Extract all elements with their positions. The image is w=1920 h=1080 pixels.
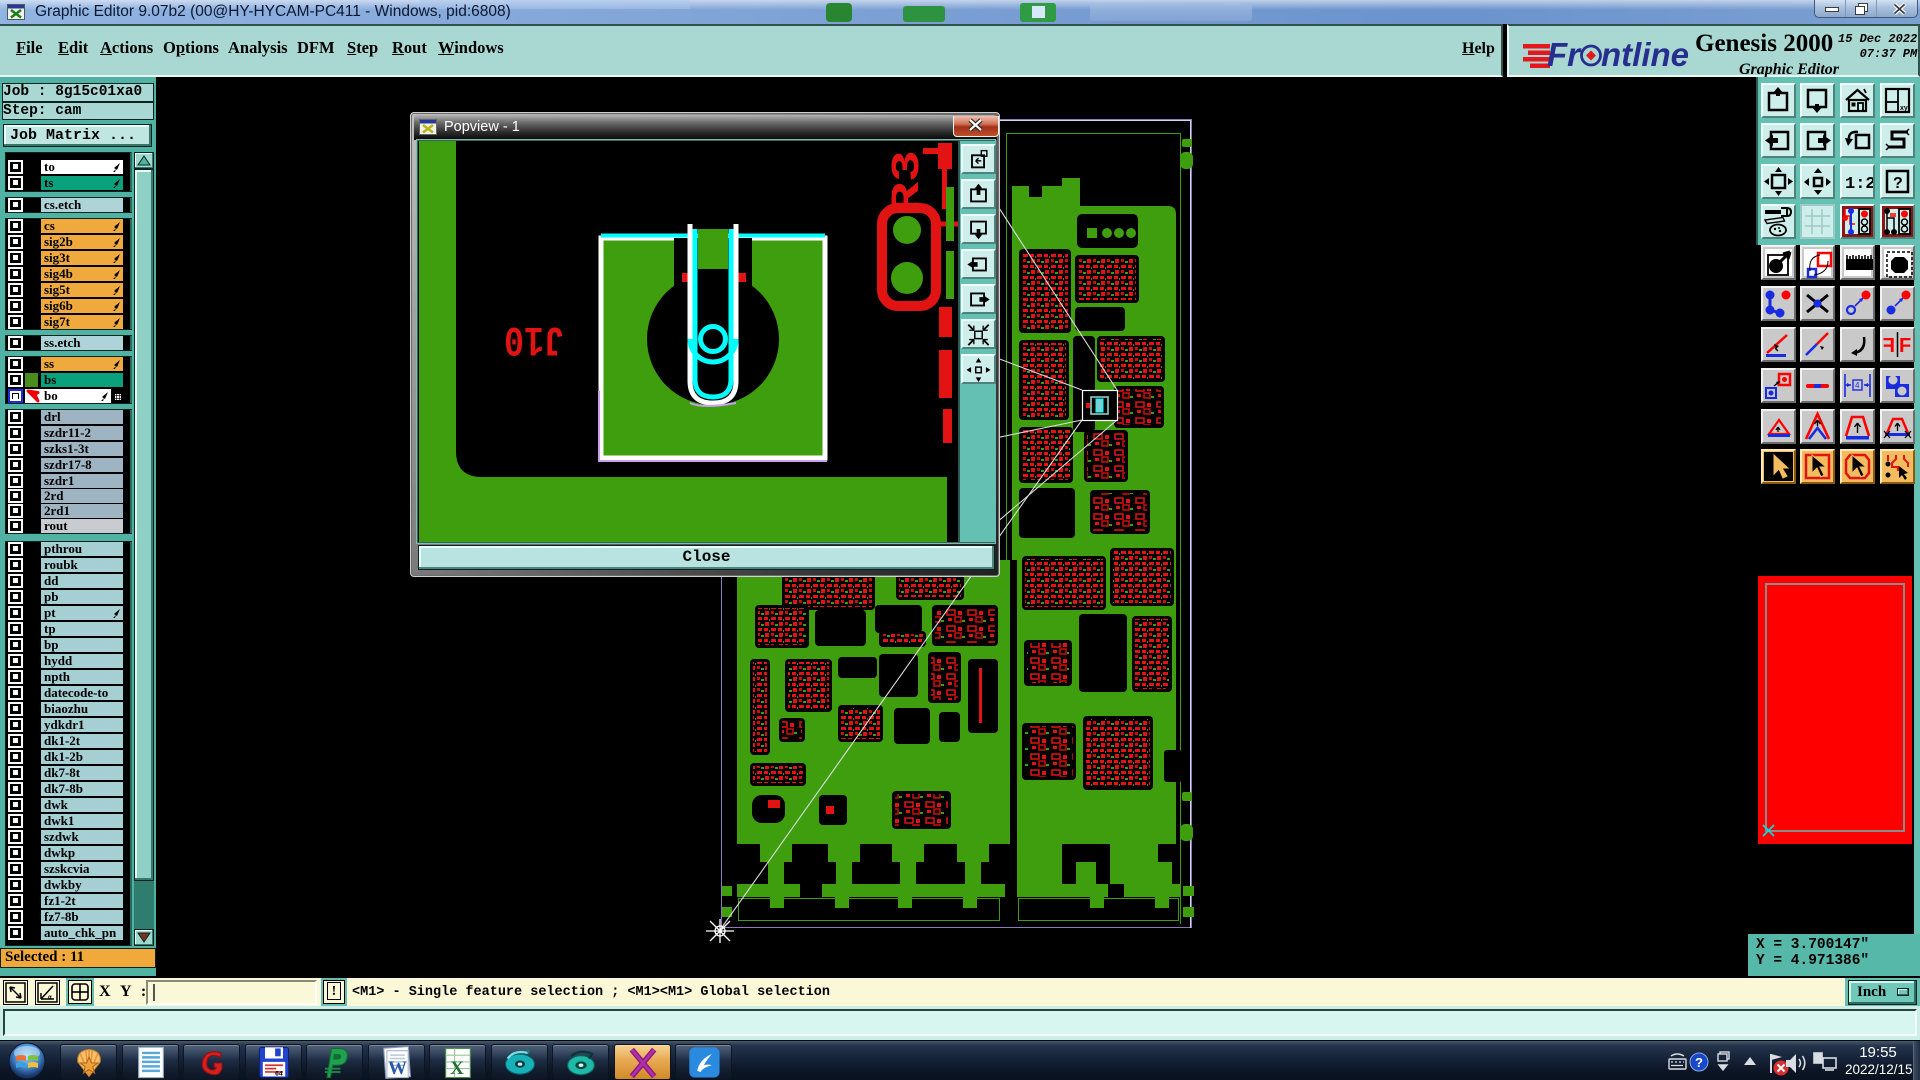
svg-text:?: ? bbox=[1893, 175, 1903, 192]
svg-text:1:2: 1:2 bbox=[1845, 175, 1873, 194]
svg-text:F: F bbox=[1883, 335, 1895, 357]
svg-text:64: 64 bbox=[275, 1070, 283, 1077]
svg-text:?: ? bbox=[1695, 1055, 1703, 1070]
svg-text:α: α bbox=[48, 995, 52, 1001]
svg-text:X: X bbox=[450, 1058, 464, 1079]
svg-text:J10: J10 bbox=[504, 315, 564, 363]
svg-text:W: W bbox=[388, 1058, 407, 1079]
svg-text:xy: xy bbox=[1900, 105, 1908, 112]
svg-text:ntline: ntline bbox=[1601, 36, 1689, 73]
svg-text:4: 4 bbox=[1855, 381, 1860, 390]
svg-text:F: F bbox=[1899, 335, 1911, 357]
svg-text:Fr: Fr bbox=[1547, 36, 1582, 73]
